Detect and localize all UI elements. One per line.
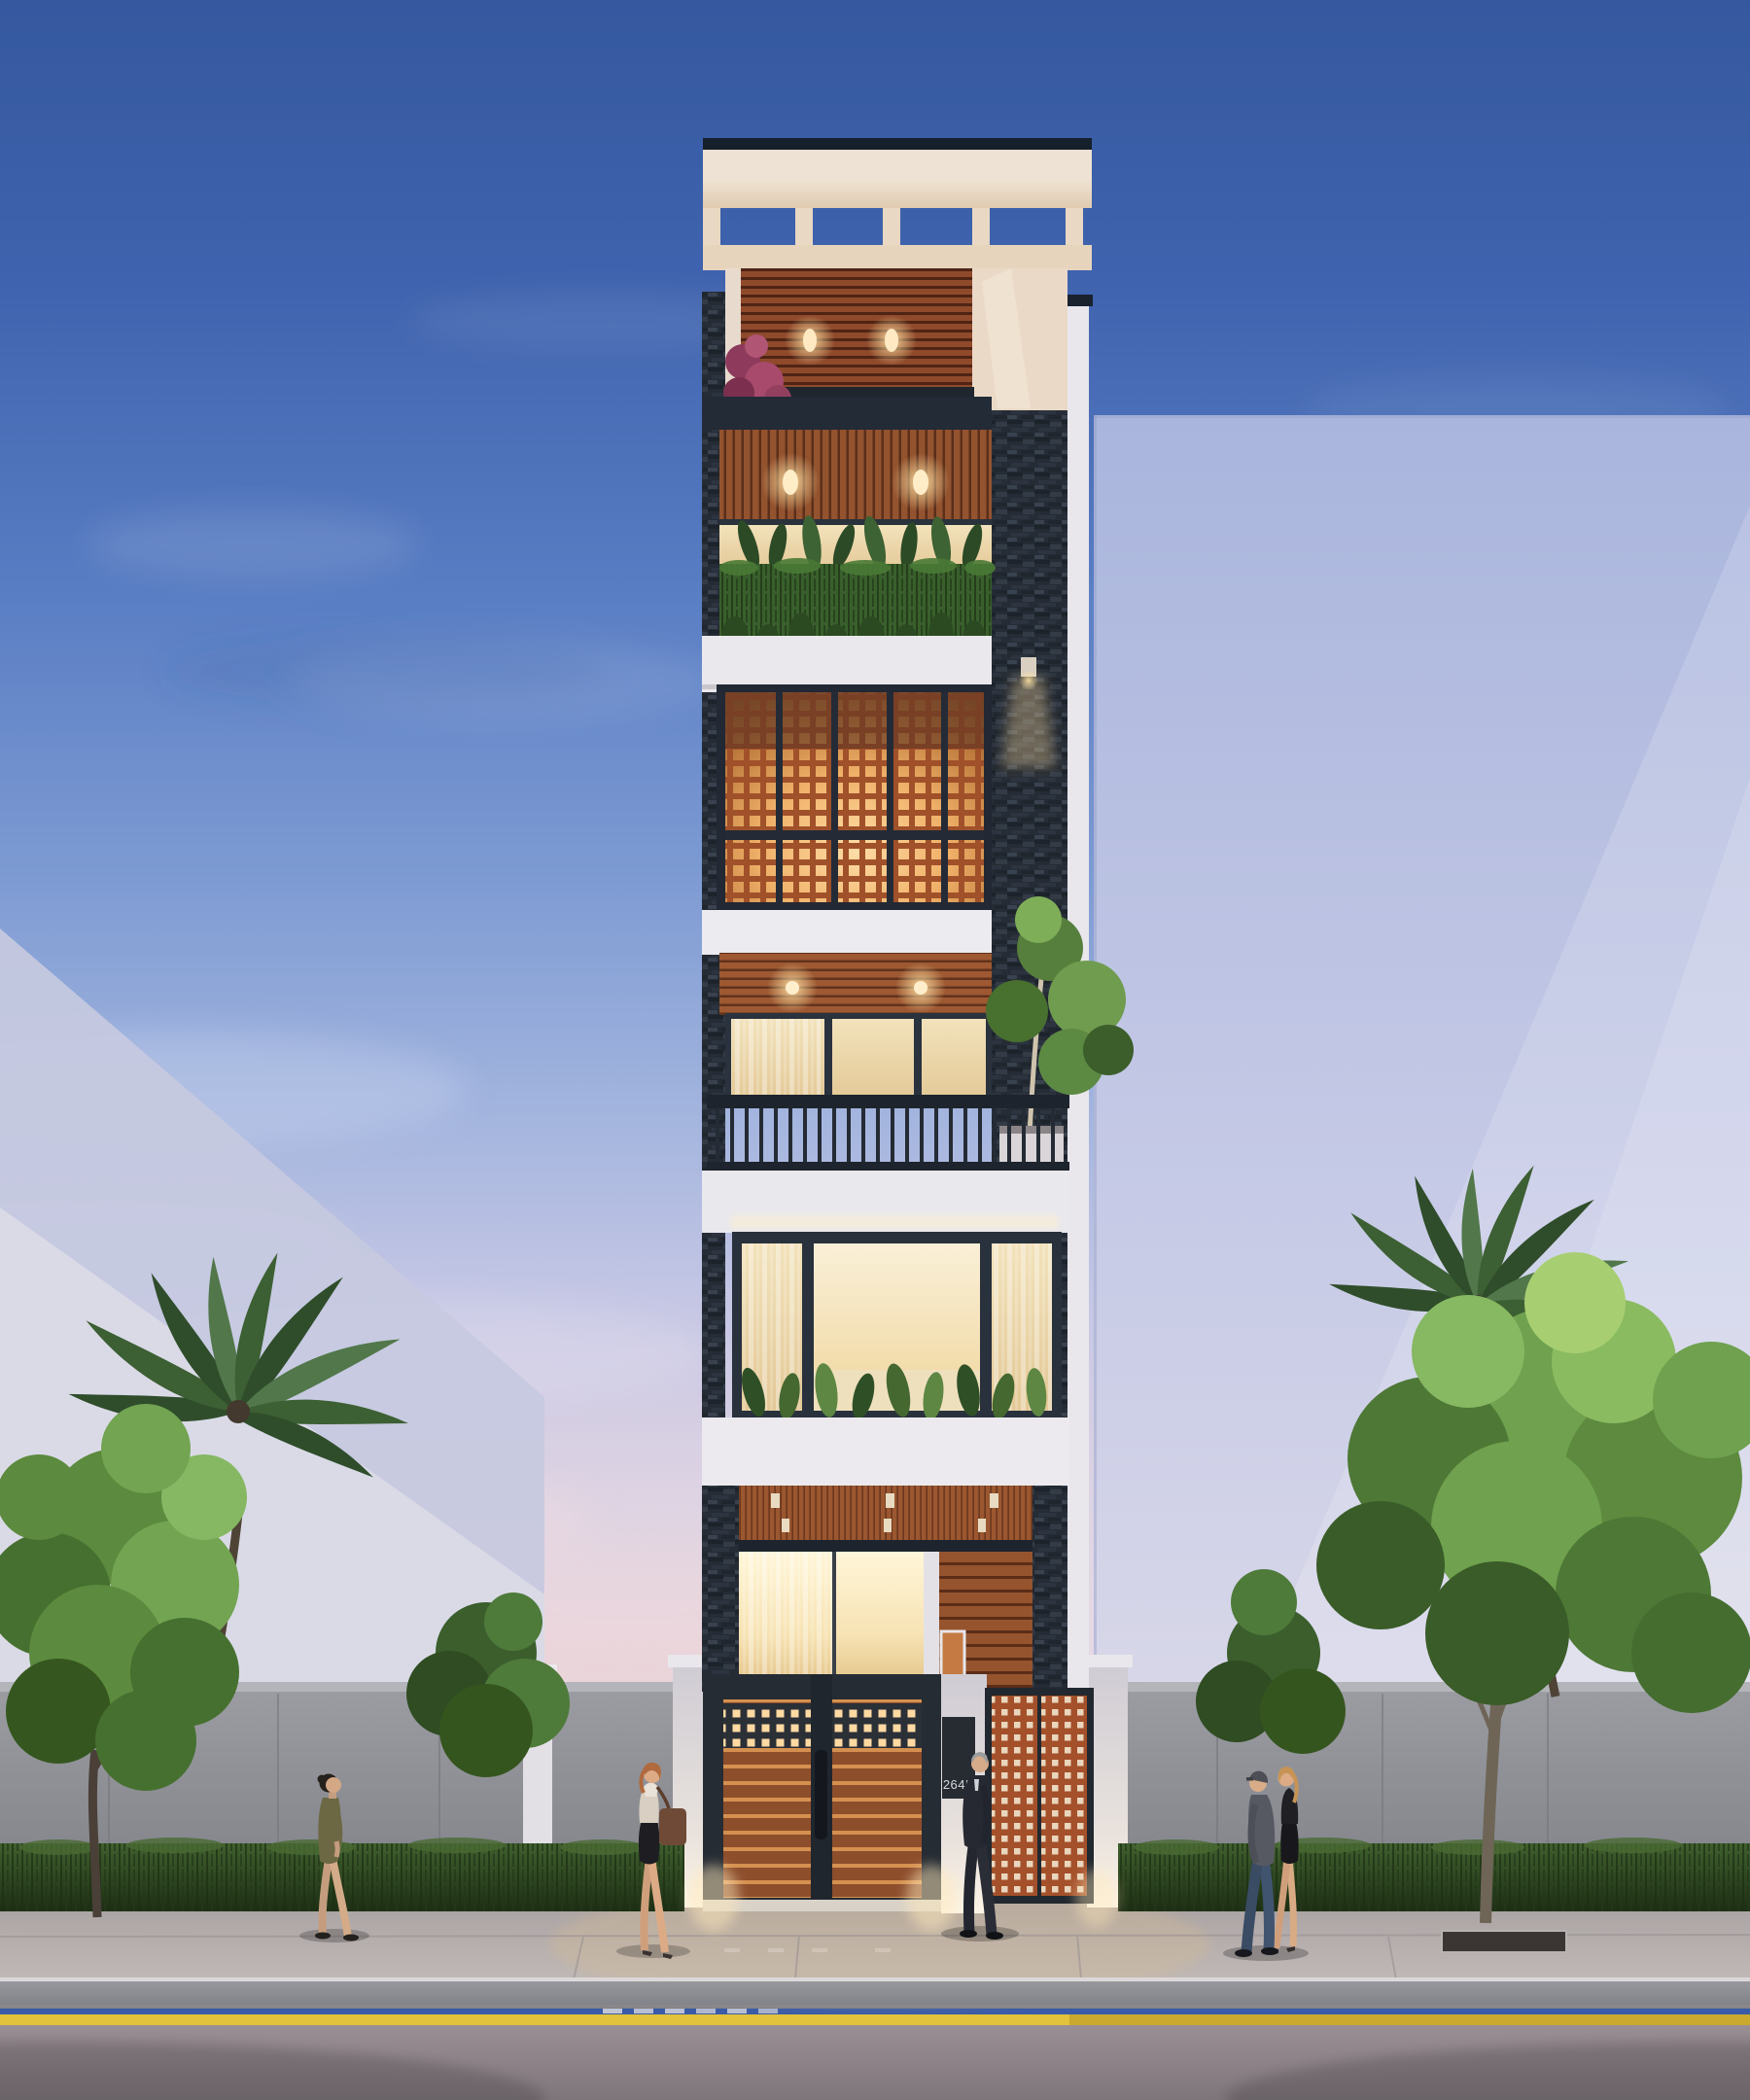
floor3-glass-doors	[725, 1013, 992, 1108]
slab-glow	[731, 1215, 1058, 1229]
floor4-lattice-screen	[702, 684, 992, 955]
pedestrian-gate	[985, 1688, 1094, 1904]
render-canvas: 264K	[0, 0, 1750, 2100]
window-center-pane	[814, 1243, 980, 1370]
roof-fascia	[703, 150, 1092, 179]
roof-cap	[703, 138, 1092, 150]
floor4-white-band	[702, 910, 992, 955]
gate-leaf-right	[832, 1699, 922, 1898]
entry-soffit-edge	[737, 1540, 1032, 1552]
gate-assembly: 264K	[688, 1674, 1118, 1931]
ceiling-lamp	[913, 470, 928, 495]
entry-curtain	[743, 1552, 832, 1690]
rooftop-pergola	[703, 138, 1092, 412]
lane-line-bright-segment	[0, 2014, 1069, 2025]
floor1-entrance	[702, 1486, 1032, 1692]
tube-house	[702, 138, 1134, 1692]
floor2-window	[702, 1232, 1069, 1486]
entry-stone-pillar	[702, 1486, 739, 1692]
ceiling-lamp	[786, 981, 799, 995]
right-edge-cap	[1064, 295, 1093, 306]
pergola-top-beam	[703, 179, 1092, 208]
rooftop-room	[723, 268, 1067, 412]
floor2-white-band	[702, 1417, 1069, 1486]
floor5-slab-shadow	[702, 397, 992, 430]
pergola-bottom-beam	[703, 245, 1092, 270]
curb	[0, 1977, 1750, 2009]
tree-pit	[1442, 1931, 1566, 1952]
entry-jamb	[924, 1552, 939, 1690]
curb-shadow-line	[0, 2005, 1750, 2008]
curb-highlight	[0, 1977, 1750, 1981]
gate-leaf-left	[723, 1699, 811, 1898]
ceiling-lamp	[914, 981, 927, 995]
floor5-white-band	[702, 636, 992, 692]
floor5	[702, 397, 996, 692]
dusk-facade-rendering: 264K	[0, 0, 1750, 2100]
ceiling-lamp	[783, 470, 798, 495]
gate-uplight-left	[688, 1865, 739, 1931]
gate-uplight-right	[906, 1865, 957, 1931]
gate-uplight-far-right	[1075, 1869, 1118, 1927]
rooftop-lamp	[803, 329, 817, 352]
rooftop-lamp	[885, 329, 898, 352]
gate-handle	[815, 1750, 827, 1839]
